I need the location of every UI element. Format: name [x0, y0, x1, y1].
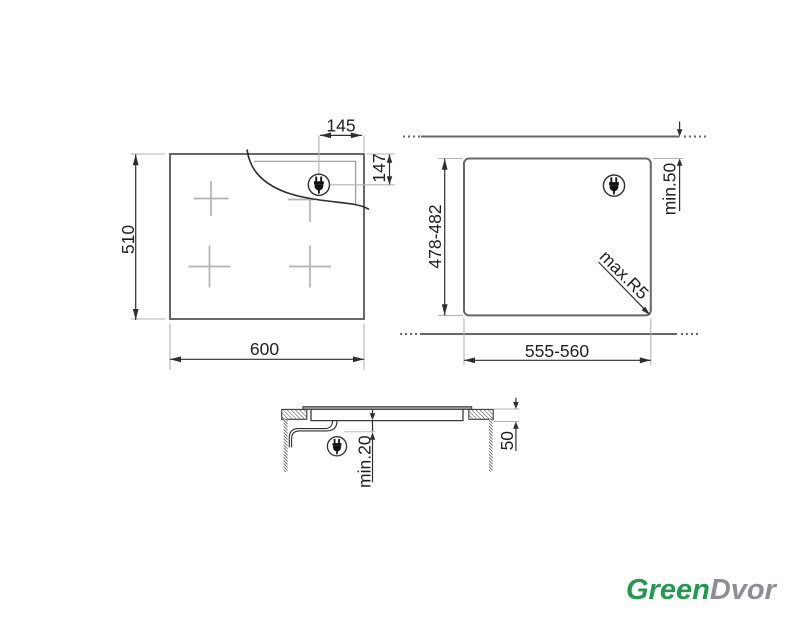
svg-text:min.20: min.20 [355, 435, 375, 488]
svg-text:510: 510 [118, 225, 138, 254]
svg-text:GreenDvor: GreenDvor [626, 574, 778, 606]
svg-text:555-560: 555-560 [525, 341, 589, 361]
svg-text:478-482: 478-482 [425, 204, 445, 268]
svg-text:147: 147 [369, 153, 389, 182]
svg-text:50: 50 [497, 431, 517, 451]
svg-text:145: 145 [326, 116, 355, 136]
svg-text:min.50: min.50 [660, 162, 680, 215]
svg-text:600: 600 [250, 339, 279, 359]
